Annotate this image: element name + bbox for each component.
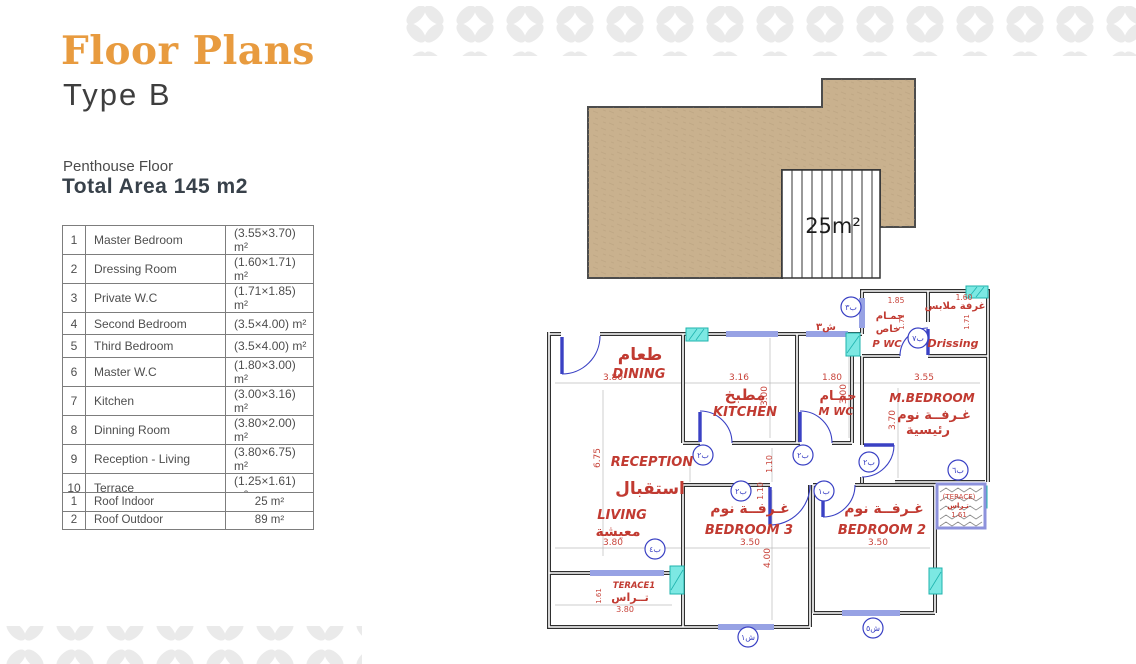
pwc-dim-h: 1.71 [898,314,906,330]
bedroom3-label-ar: غـرفــة نوم [710,501,789,517]
terrace1-label-ar: تــراس [611,591,648,604]
roof-areas-table: 1Roof Indoor25 m² 2Roof Outdoor89 m² [62,492,314,530]
mwc-label-en: M WC [819,405,854,418]
mwc-label-ar: حمـام [820,389,857,404]
street-tag-label: ش٣ [816,322,836,333]
room-dims: (3.55×3.70) m² [226,226,314,255]
room-dims: (1.60×1.71) m² [226,255,314,284]
tag-label: ش١ [741,633,755,642]
room-name: Master Bedroom [86,226,226,255]
decor-band-bottom [0,626,362,664]
terrace2-dim-w: 1.61 [951,511,967,519]
table-row: 1Roof Indoor25 m² [63,493,314,512]
room-name: Kitchen [86,386,226,415]
bedroom2-label-en: BEDROOM 2 [838,523,926,538]
room-name: Master W.C [86,357,226,386]
roof-stairs-area-label: 25m² [805,214,861,238]
dressing-label-en: Drissing [928,337,979,350]
row-number: 1 [63,493,86,512]
tag-label: ب٧ [912,334,924,343]
room-dims: (3.80×2.00) m² [226,415,314,444]
mbedroom-dim-h: 3.70 [888,410,898,430]
mbedroom-label-ar1: غـرفــة نوم [897,408,971,423]
tag-label: ب٢ [735,487,747,496]
tag-label: ب٢ [697,451,709,460]
terrace2-label-en: (TERACE) [943,493,976,501]
row-number: 5 [63,335,86,357]
dining-label-ar: طعام [618,345,662,365]
reception-dim-h: 6.75 [593,448,603,468]
bedroom3-label-en: BEDROOM 3 [705,523,793,538]
dressing-dim-h: 1.71 [963,314,971,330]
bedroom3-dim-w: 3.50 [740,538,760,548]
plan-tags: ب٢ ب٢ ب٢ ب١ ب٢ ب٦ ب٤ ب٣ ب٧ ش١ ش٥ [645,297,968,647]
tag-label: ب٢ [863,458,875,467]
table-row: 1Master Bedroom(3.55×3.70) m² [63,226,314,255]
living-label-en: LIVING [597,508,647,523]
bedroom2-dim-w: 3.50 [868,538,888,548]
row-number: 2 [63,255,86,284]
table-row: 4Second Bedroom(3.5×4.00) m² [63,313,314,335]
table-row: 2Roof Outdoor89 m² [63,511,314,530]
mbedroom-label-ar2: رئيسية [906,423,950,438]
room-name: Dressing Room [86,255,226,284]
hall-dim-2: 1.10 [756,482,765,500]
dressing-label-ar: غرفة ملابس [925,301,986,312]
roof-outline: 25m² [588,79,915,278]
floor-plan-page: 25m² [0,0,1136,664]
reception-label-en: RECEPTION [611,455,694,470]
decor-band-top [402,6,1136,56]
row-number: 2 [63,511,86,530]
dressing-dim-w: 1.60 [956,293,973,302]
page-title: Floor Plans [61,28,315,74]
roof-area-name: Roof Outdoor [86,511,226,530]
pwc-dim-w: 1.85 [888,296,905,305]
terrace1-dim-w: 3.80 [616,605,634,614]
roof-area-value: 89 m² [226,511,314,530]
roof-area-value: 25 m² [226,493,314,512]
tag-label: ب١ [818,487,830,496]
tag-label: ب٢ [797,451,809,460]
roof-area-name: Roof Indoor [86,493,226,512]
row-number: 6 [63,357,86,386]
table-row: 2Dressing Room(1.60×1.71) m² [63,255,314,284]
row-number: 7 [63,386,86,415]
row-number: 9 [63,444,86,473]
mbedroom-dim-w: 3.55 [914,373,934,383]
kitchen-dim-w: 3.16 [729,373,749,383]
row-number: 3 [63,284,86,313]
room-dims: (3.5×4.00) m² [226,335,314,357]
floor-label: Penthouse Floor [63,158,173,175]
bedroom2-label-ar: غـرفــة نوم [844,501,923,517]
tag-label: ش٥ [866,624,880,633]
table-row: 7Kitchen(3.00×3.16) m² [63,386,314,415]
room-name: Reception - Living [86,444,226,473]
room-dims: (3.80×6.75) m² [226,444,314,473]
mwc-dim-h: 3.00 [839,384,849,404]
tag-label: ب٤ [649,545,661,554]
terrace1-dim-h: 1.61 [595,588,603,604]
pwc-label-ar2: خاص [876,324,900,335]
mwc-dim-w: 1.80 [822,373,842,383]
page-subtitle: Type B [63,77,172,113]
tag-label: ب٦ [952,466,964,475]
terrace1-label-en: TERACE1 [613,581,655,591]
rooms-dimensions-table: 1Master Bedroom(3.55×3.70) m² 2Dressing … [62,225,314,503]
table-row: 8Dinning Room(3.80×2.00) m² [63,415,314,444]
room-name: Third Bedroom [86,335,226,357]
room-name: Dinning Room [86,415,226,444]
pwc-label-en: P WC [872,339,902,350]
table-row: 5Third Bedroom(3.5×4.00) m² [63,335,314,357]
row-number: 4 [63,313,86,335]
dining-dim-w: 3.80 [603,373,623,383]
terrace2-label-ar: تـراس [947,502,969,510]
hall-dim-1: 1.10 [765,455,774,473]
room-dims: (1.71×1.85) m² [226,284,314,313]
table-row: 3Private W.C(1.71×1.85) m² [63,284,314,313]
kitchen-label-en: KITCHEN [713,405,777,420]
bedroom3-dim-h: 4.00 [763,548,773,568]
room-dims: (3.5×4.00) m² [226,313,314,335]
total-area-label: Total Area 145 m2 [62,175,248,199]
row-number: 8 [63,415,86,444]
room-dims: (3.00×3.16) m² [226,386,314,415]
living-dim-w: 3.80 [603,538,623,548]
table-row: 6Master W.C(1.80×3.00) m² [63,357,314,386]
tag-label: ب٣ [845,303,857,312]
kitchen-dim-h: 3.00 [760,386,770,406]
room-name: Private W.C [86,284,226,313]
table-row: 9Reception - Living(3.80×6.75) m² [63,444,314,473]
room-name: Second Bedroom [86,313,226,335]
row-number: 1 [63,226,86,255]
room-dims: (1.80×3.00) m² [226,357,314,386]
reception-label-ar: استقبال [615,479,685,499]
mbedroom-label-en: M.BEDROOM [889,391,974,405]
